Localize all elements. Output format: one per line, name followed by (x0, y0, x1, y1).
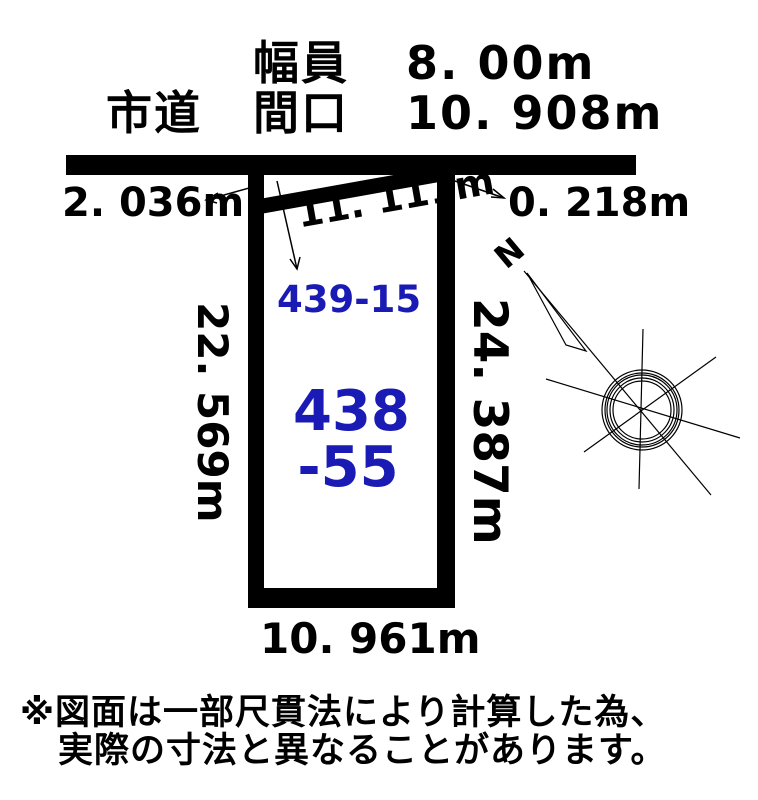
land-survey-diagram: 幅員 8. 00m 市道 間口 10. 908m 2. 036m 0. 218m… (0, 0, 758, 800)
road-type-label: 市道 (106, 90, 202, 136)
disclaimer-line2: 実際の寸法と異なることがあります。 (58, 734, 667, 769)
parcel-left-boundary (248, 175, 264, 608)
dim-left-side: 22. 569m (191, 302, 233, 522)
frontage-value: 10. 908m (406, 90, 663, 136)
parcel-bottom-boundary (248, 588, 455, 608)
main-lot-number-line1: 438 (293, 384, 403, 440)
dim-left-offset: 2. 036m (62, 183, 244, 223)
road-bar (66, 155, 636, 175)
parcel-right-boundary (437, 175, 455, 608)
main-lot-number: 438 -55 (293, 384, 403, 496)
road-width-value: 8. 00m (406, 40, 595, 86)
compass-spoke (546, 379, 740, 438)
adjacent-lot-number: 439-15 (277, 281, 421, 318)
frontage-label: 間口 (253, 90, 349, 136)
dim-right-side: 24. 387m (466, 298, 513, 545)
dim-right-offset: 0. 218m (508, 183, 690, 223)
compass-rose (546, 329, 740, 489)
dim-bottom-side: 10. 961m (260, 618, 480, 660)
disclaimer-line1: ※図面は一部尺貫法により計算した為、 (20, 696, 666, 731)
north-arrow-feather (527, 273, 586, 351)
road-width-label: 幅員 (253, 40, 349, 86)
main-lot-number-line2: -55 (293, 440, 403, 496)
